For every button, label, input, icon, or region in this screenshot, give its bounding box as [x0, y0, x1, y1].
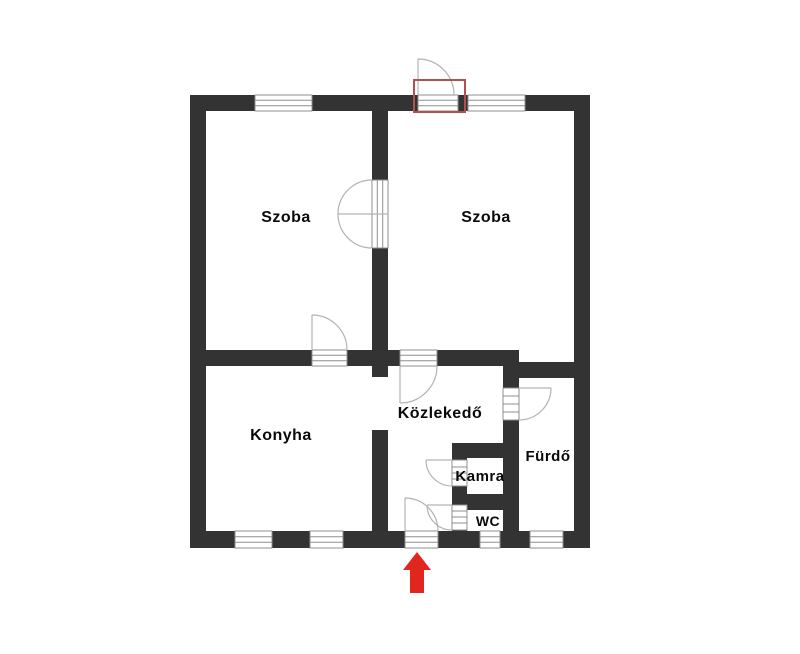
window-szoba-1-top: [255, 95, 312, 111]
floor-plan-drawing: Szoba Szoba Konyha Közlekedő Kamra Fürdő…: [0, 0, 800, 654]
room-label-kamra: Kamra: [455, 468, 504, 485]
room-label-szoba-2: Szoba: [461, 209, 511, 226]
door-threshold-szoba2-kozlekedo: [400, 350, 437, 366]
window-konyha-bottom-1: [235, 531, 272, 548]
door-threshold-szoba1-konyha: [312, 350, 347, 366]
room-label-konyha: Konyha: [250, 427, 312, 444]
window-szoba-2-top: [468, 95, 525, 111]
floor-plan-page: Szoba Szoba Konyha Közlekedő Kamra Fürdő…: [0, 0, 800, 654]
wall-konyha-kozlekedo: [372, 430, 388, 531]
wall-furdo-top: [519, 362, 574, 378]
door-threshold-wc: [452, 505, 467, 530]
window-furdo-bottom: [530, 531, 563, 548]
window-konyha-bottom-2: [310, 531, 343, 548]
room-label-szoba-1: Szoba: [261, 209, 311, 226]
door-threshold-entrance: [405, 531, 438, 548]
room-label-kozlekedo: Közlekedő: [398, 405, 483, 422]
wall-exterior-right: [574, 95, 590, 548]
wall-szoba-bottom: [206, 350, 519, 366]
room-label-furdo: Fürdő: [526, 448, 571, 465]
window-wc-bottom: [480, 531, 500, 548]
door-threshold-furdo: [503, 388, 519, 420]
wall-exterior-left: [190, 95, 206, 548]
room-label-wc: WC: [476, 513, 500, 529]
wall-exterior-top: [190, 95, 590, 111]
door-threshold-balcony: [418, 95, 458, 111]
